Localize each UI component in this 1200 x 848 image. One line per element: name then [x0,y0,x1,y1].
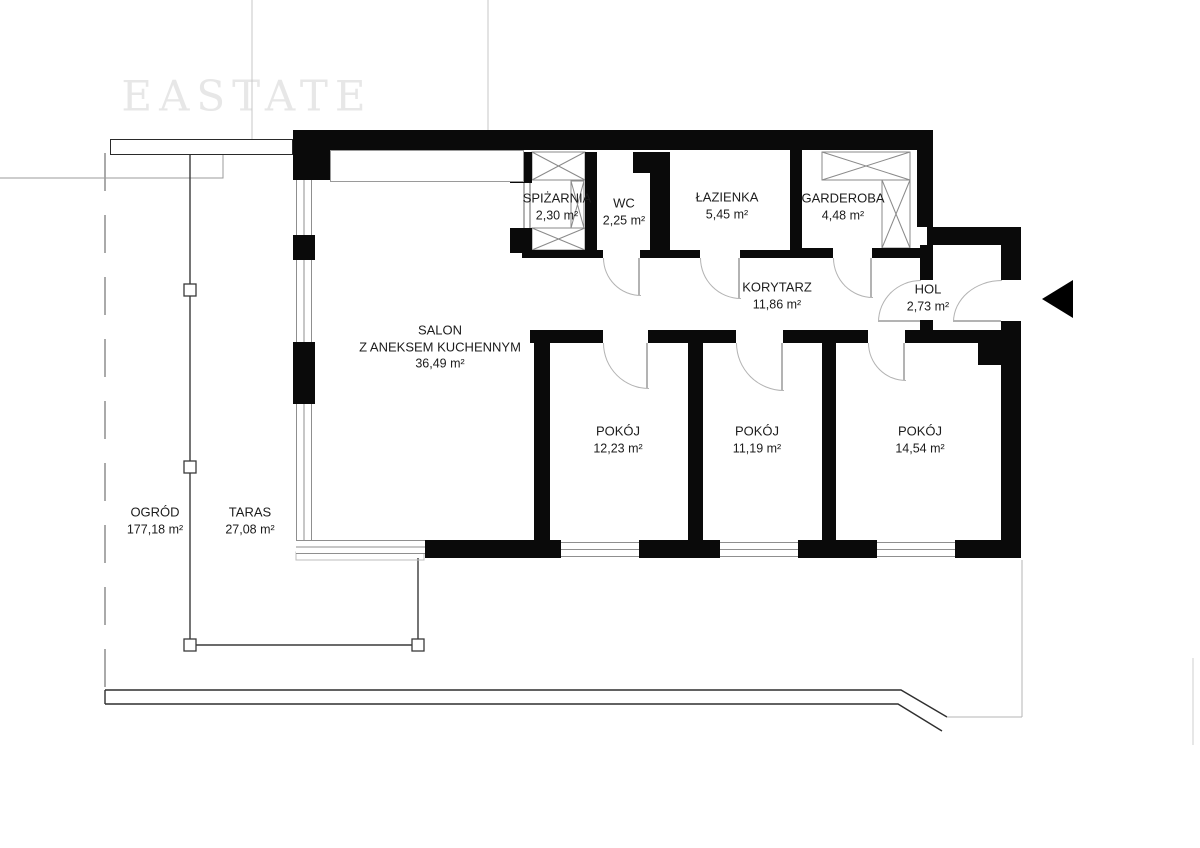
wall-korytarz-bottom [783,330,868,343]
wall-exterior-bottom [798,540,877,558]
wall-exterior-left [293,235,315,260]
door-leaf-entrance [953,320,1001,322]
entrance-arrow-icon [1042,280,1073,318]
road-edge [105,690,947,731]
room-label-taras: TARAS 27,08 m² [225,505,274,538]
wall-hol-top [927,227,1021,245]
kitchen-counter [330,150,524,182]
wall-exterior-bottom [425,540,561,558]
door-leaf-garderoba [870,258,872,297]
window-pokoj2 [720,542,798,557]
room-label-pokoj3: POKÓJ 14,54 m² [895,424,944,457]
wall-corner-topleft [293,130,330,180]
door-leaf-hol [878,320,920,322]
window-salon-left [296,404,312,540]
wall-korytarz-top [640,250,700,258]
room-label-spizarnia: SPIŻARNIA 2,30 m² [523,191,592,224]
door-leaf-pokoj1 [646,343,648,388]
room-name: GARDEROBA [801,191,884,208]
wall-lazienka-garderoba [790,150,802,258]
window-pokoj3 [877,542,955,557]
wall-garderoba-bottom [790,248,833,258]
wall-korytarz-top [597,250,603,258]
room-area: 2,25 m² [603,212,645,228]
wall-entrance-jamb [1001,245,1021,280]
wall-wc-lazienka [650,173,670,258]
room-name: SPIŻARNIA [523,191,592,208]
wall-korytarz-bottom [648,330,736,343]
room-label-hol: HOL 2,73 m² [907,282,949,315]
wall-exterior-right-upper [917,130,933,227]
room-label-pokoj1: POKÓJ 12,23 m² [593,424,642,457]
wall-exterior-top [293,130,933,150]
room-area: 2,30 m² [523,207,592,223]
wall-wc-notch [633,152,670,173]
door-leaf-lazienka [738,258,740,298]
room-area: 12,23 m² [593,440,642,456]
room-name: TARAS [225,505,274,522]
room-name: POKÓJ [593,424,642,441]
wall-exterior-bottom [639,540,720,558]
wall-pokoj1-pokoj2 [688,343,703,540]
room-area: 4,48 m² [801,207,884,223]
floor-plan: EASTATE [0,0,1200,848]
wall-korytarz-top [740,250,790,258]
room-label-salon: SALON Z ANEKSEM KUCHENNYM 36,49 m² [359,322,521,371]
window-salon-bottom [296,540,425,554]
wall-hol-bottom [905,330,1003,343]
fence-post [412,639,424,651]
room-label-pokoj2: POKÓJ 11,19 m² [733,424,781,457]
wall-salon-pokoj1 [534,330,550,540]
room-area: 177,18 m² [127,521,183,537]
wall-exterior-left [293,342,315,404]
room-area: 14,54 m² [895,440,944,456]
fence-post [184,639,196,651]
door-leaf-wc [638,258,640,295]
room-area: 11,86 m² [742,296,812,312]
room-label-wc: WC 2,25 m² [603,196,645,229]
closet-symbol-spizarnia-bottom [532,228,585,250]
room-name: HOL [907,282,949,299]
room-name: OGRÓD [127,505,183,522]
wall-korytarz-hol [920,245,933,280]
door-leaf-pokoj2 [781,343,783,390]
wall-spizarnia-bottom [522,250,597,258]
room-name: ŁAZIENKA [696,190,759,207]
room-area: 2,73 m² [907,298,949,314]
room-name: POKÓJ [895,424,944,441]
room-area: 11,19 m² [733,440,781,456]
fence-post [184,284,196,296]
room-area: 27,08 m² [225,521,274,537]
wall-pokoj2-pokoj3 [822,343,836,540]
room-name: SALON [359,322,521,339]
wall-exterior-right [1001,321,1021,558]
room-label-garderoba: GARDEROBA 4,48 m² [801,191,884,224]
room-area: 36,49 m² [359,356,521,372]
site-wall-bar [110,139,293,155]
room-area: 5,45 m² [696,206,759,222]
room-name: KORYTARZ [742,280,812,297]
window-salon-left [296,180,312,235]
room-name: POKÓJ [733,424,781,441]
door-leaf-pokoj3 [903,343,905,380]
room-label-korytarz: KORYTARZ 11,86 m² [742,280,812,313]
closet-symbol-garderoba-top [822,152,910,180]
fence-post [184,461,196,473]
room-label-lazienka: ŁAZIENKA 5,45 m² [696,190,759,223]
room-name-2: Z ANEKSEM KUCHENNYM [359,339,521,356]
wall-garderoba-bottom [872,248,920,258]
room-name: WC [603,196,645,213]
window-pokoj1 [561,542,639,557]
window-salon-left [296,260,312,342]
closet-symbol-spizarnia-top [532,152,585,180]
room-label-ogrod: OGRÓD 177,18 m² [127,505,183,538]
closet-symbol-garderoba-side [882,180,910,248]
